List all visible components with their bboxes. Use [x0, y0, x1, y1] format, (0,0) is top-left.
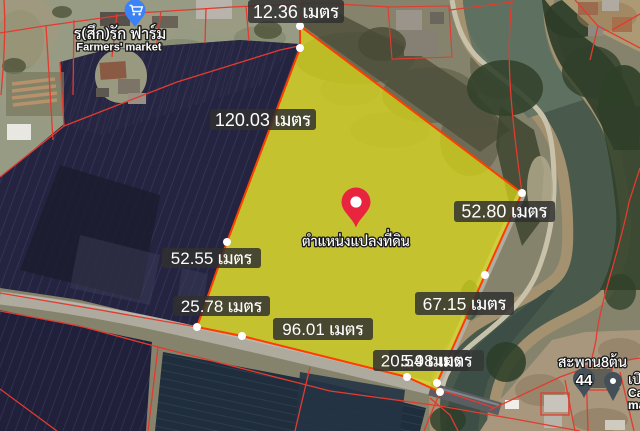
svg-text:12.36: 12.36 — [253, 2, 298, 22]
svg-text:Farmers' market: Farmers' market — [76, 42, 162, 54]
svg-text:5.98: 5.98 — [401, 352, 434, 371]
svg-text:67.15: 67.15 — [423, 294, 467, 314]
svg-text:25.78: 25.78 — [181, 297, 224, 316]
svg-text:52.55: 52.55 — [171, 249, 214, 268]
svg-text:96.01: 96.01 — [282, 320, 325, 339]
svg-text:120.03: 120.03 — [215, 110, 270, 130]
svg-text:44: 44 — [576, 372, 593, 389]
svg-text:52.80: 52.80 — [461, 202, 506, 222]
svg-text:ma: ma — [628, 398, 640, 412]
